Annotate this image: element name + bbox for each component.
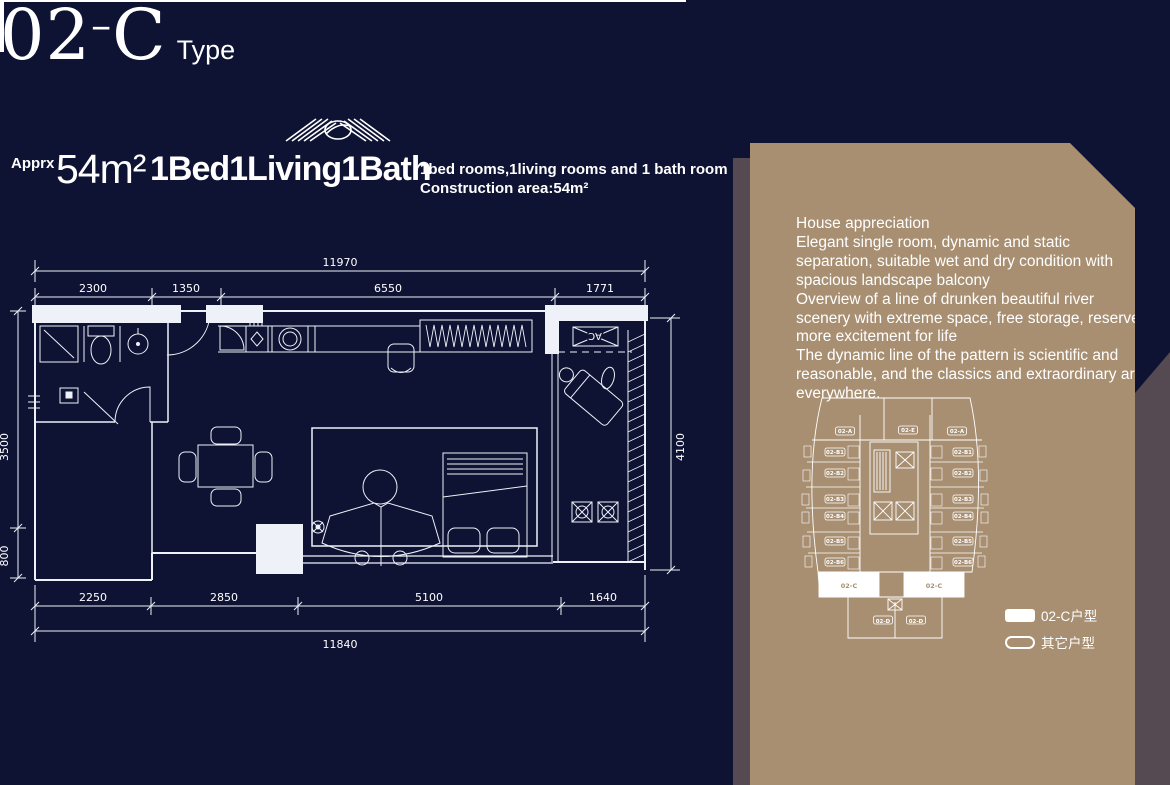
pillow	[487, 528, 519, 553]
description-paragraph: House appreciation	[796, 215, 1148, 234]
legend-swatch-outline	[1005, 636, 1035, 649]
unit-label: 02-B1	[826, 450, 844, 456]
dim-left-upper-label: 3500	[0, 433, 11, 461]
dimension-left: 3500 800	[0, 307, 26, 582]
compass-icon	[312, 521, 324, 533]
page: 02–CType Apprx 54m² 1Bed1Living1Bath 1be…	[0, 0, 1170, 785]
legend-label: 02-C户型	[1041, 605, 1097, 625]
dim-bottom-4: 1640	[589, 591, 617, 604]
unit-label: 02-D	[909, 619, 924, 625]
building-core	[870, 442, 918, 534]
info-panel: House appreciation Elegant single room, …	[750, 143, 1135, 785]
legend-row-other: 其它户型	[1005, 632, 1097, 652]
unit-label: 02-A	[838, 429, 853, 435]
dim-bottom-total-label: 11840	[323, 638, 358, 651]
dim-bottom-2: 2850	[210, 591, 238, 604]
toilet	[91, 336, 111, 364]
panel-shadow-right	[1135, 158, 1170, 785]
balcony-rail	[628, 330, 645, 562]
legend-swatch-filled	[1005, 609, 1035, 622]
bed	[443, 453, 527, 557]
unit-label: 02-A	[950, 429, 965, 435]
wardrobe	[420, 320, 532, 352]
pouf-table	[363, 470, 397, 504]
panel-shadow-left	[733, 158, 750, 785]
bathroom	[28, 326, 150, 424]
unit-label: 02-B1	[954, 450, 972, 456]
pillow	[448, 528, 480, 553]
dim-top-3: 6550	[374, 282, 402, 295]
unit-label: 02-B4	[826, 514, 844, 520]
unit-label: 02-B6	[826, 560, 844, 566]
description-paragraph: Elegant single room, dynamic and static …	[796, 234, 1148, 291]
unit-label: 02-B2	[954, 471, 972, 477]
unit-label: 02-B2	[826, 471, 844, 477]
outer-walls	[33, 306, 647, 580]
legend-row-02c: 02-C户型	[1005, 605, 1097, 625]
bathroom-door	[115, 387, 150, 422]
dimension-top-segments: 2300 1350 6550 1771	[31, 282, 649, 306]
dim-top-2: 1350	[172, 282, 200, 295]
unit-label: 02-B5	[826, 539, 844, 545]
floor-plan: 11970 2300 1350 6550 1771	[0, 0, 700, 700]
kitchen-sink	[246, 326, 268, 352]
dim-top-1: 2300	[79, 282, 107, 295]
house-appreciation-text: House appreciation Elegant single room, …	[796, 215, 1148, 404]
dim-top-total-label: 11970	[323, 256, 358, 269]
dimension-top-total: 11970	[31, 256, 649, 282]
unit-label: 02-E	[901, 428, 915, 434]
unit-label: 02-B3	[954, 497, 972, 503]
unit-label: 02-B4	[954, 514, 972, 520]
balcony: AC	[551, 323, 645, 562]
dimension-bottom-total: 11840	[31, 627, 649, 651]
dim-right-label: 4100	[674, 433, 687, 461]
dimension-bottom-segments: 2250 2850 5100 1640	[31, 575, 649, 642]
plant	[599, 366, 616, 390]
ac-label: AC	[588, 330, 602, 341]
dining-set	[179, 427, 272, 506]
dim-left-lower-label: 800	[0, 546, 11, 567]
dim-bottom-3: 5100	[415, 591, 443, 604]
dimension-right: 4100	[650, 314, 687, 574]
ac-box: AC	[573, 327, 618, 346]
kitchen	[218, 321, 420, 352]
unit-label-02C: 02-C	[926, 582, 943, 590]
unit-label-02C: 02-C	[841, 582, 858, 590]
key-plan: 02-A 02-E 02-A 02-B1 02-B1 02-B2 02-B2 0…	[800, 390, 995, 645]
unit-label: 02-B3	[826, 497, 844, 503]
unit-label: 02-B5	[954, 539, 972, 545]
key-plan-legend: 02-C户型 其它户型	[1005, 605, 1097, 659]
unit-label: 02-B6	[954, 560, 972, 566]
dim-top-4: 1771	[586, 282, 614, 295]
chair	[388, 344, 414, 373]
unit-label: 02-D	[876, 619, 891, 625]
washing-machine	[272, 326, 308, 352]
dining-table	[198, 445, 253, 487]
legend-label: 其它户型	[1041, 632, 1095, 652]
dim-bottom-1: 2250	[79, 591, 107, 604]
living-area	[312, 428, 537, 566]
ac-outdoor-units	[572, 502, 618, 522]
description-paragraph: Overview of a line of drunken beautiful …	[796, 291, 1148, 348]
